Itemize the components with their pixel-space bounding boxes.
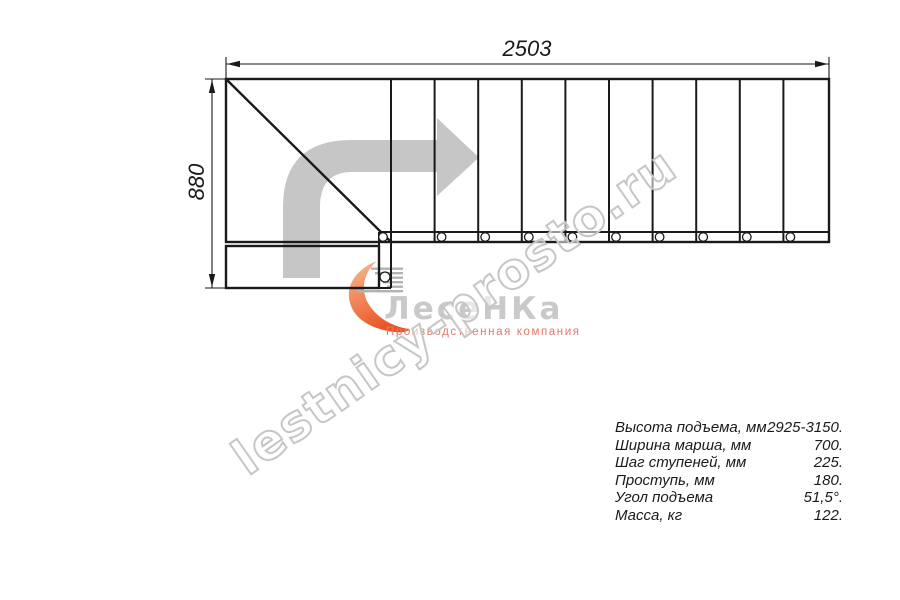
dim-arrow-left	[227, 61, 240, 67]
stair-drawing-page: 2503 880 ЛесеНКа Производственная компан…	[0, 0, 900, 600]
spec-value: 180.	[814, 472, 843, 490]
logo-subtitle: Производственная компания	[386, 326, 581, 338]
spec-row: Масса, кг 122.	[615, 507, 843, 525]
spec-value: 122.	[814, 507, 843, 525]
spec-row: Шаг ступеней, мм 225.	[615, 454, 843, 472]
spec-row: Ширина марша, мм 700.	[615, 437, 843, 455]
spec-row: Угол подъема 51,5°.	[615, 489, 843, 507]
dimension-height-label: 880	[184, 163, 209, 200]
dimension-width-label: 2503	[502, 36, 553, 61]
spec-value: 2925-3150.	[767, 419, 843, 437]
dim-arrow-bottom	[209, 274, 215, 287]
spec-label: Ширина марша, мм	[615, 437, 751, 455]
spec-value: 225.	[814, 454, 843, 472]
spec-label: Шаг ступеней, мм	[615, 454, 746, 472]
spec-row: Высота подъема, мм 2925-3150.	[615, 419, 843, 437]
spec-label: Угол подъема	[615, 489, 713, 507]
spec-row: Проступь, мм 180.	[615, 472, 843, 490]
spec-label: Высота подъема, мм	[615, 419, 767, 437]
baluster-circles	[379, 233, 795, 282]
direction-arrow-icon	[283, 118, 479, 278]
spec-label: Проступь, мм	[615, 472, 715, 490]
dim-arrow-right	[815, 61, 828, 67]
logo-company-name: ЛесеНКа	[384, 291, 563, 327]
spec-label: Масса, кг	[615, 507, 682, 525]
dimension-height: 880	[184, 79, 226, 288]
dim-arrow-top	[209, 80, 215, 93]
spec-value: 51,5°.	[804, 489, 843, 507]
dimension-width: 2503	[226, 36, 829, 79]
spec-value: 700.	[814, 437, 843, 455]
spec-table: Высота подъема, мм 2925-3150. Ширина мар…	[615, 419, 843, 524]
